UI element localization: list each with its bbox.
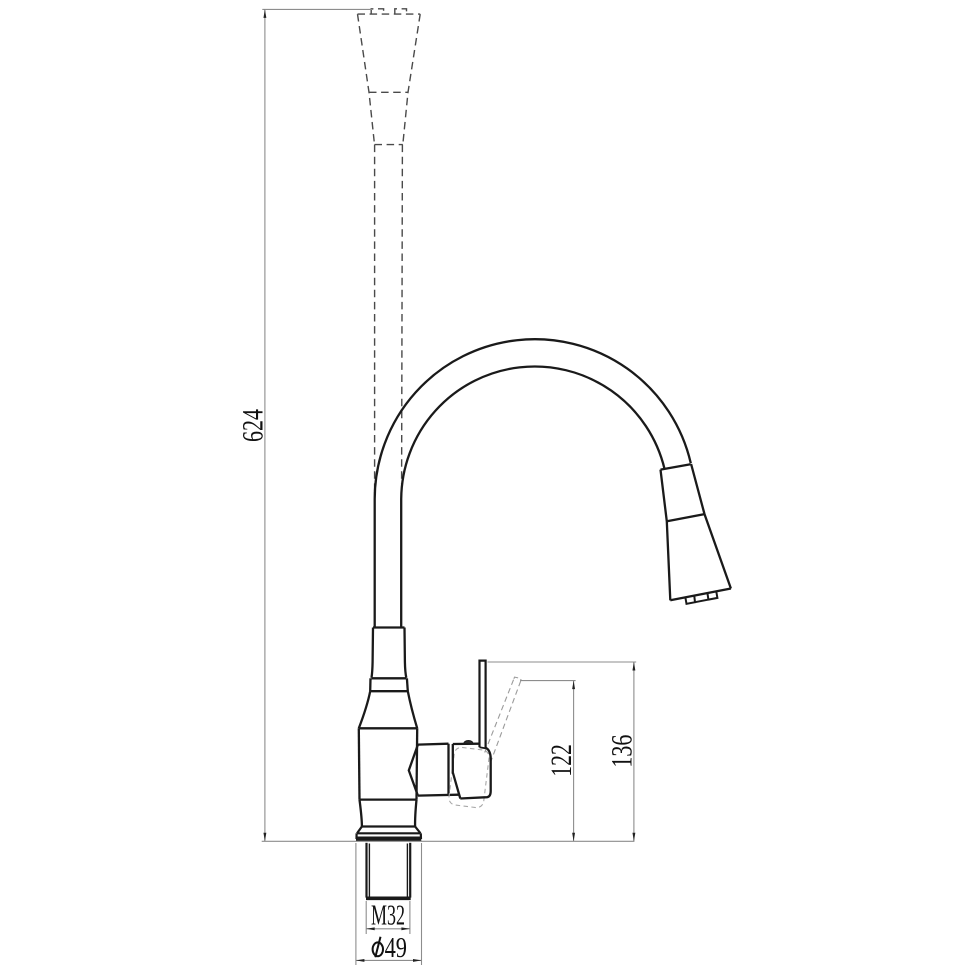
svg-text:M32: M32 <box>371 900 405 932</box>
svg-text:49: 49 <box>385 932 407 964</box>
svg-text:624: 624 <box>237 409 270 442</box>
svg-text:136: 136 <box>606 735 639 768</box>
svg-text:122: 122 <box>545 744 578 777</box>
